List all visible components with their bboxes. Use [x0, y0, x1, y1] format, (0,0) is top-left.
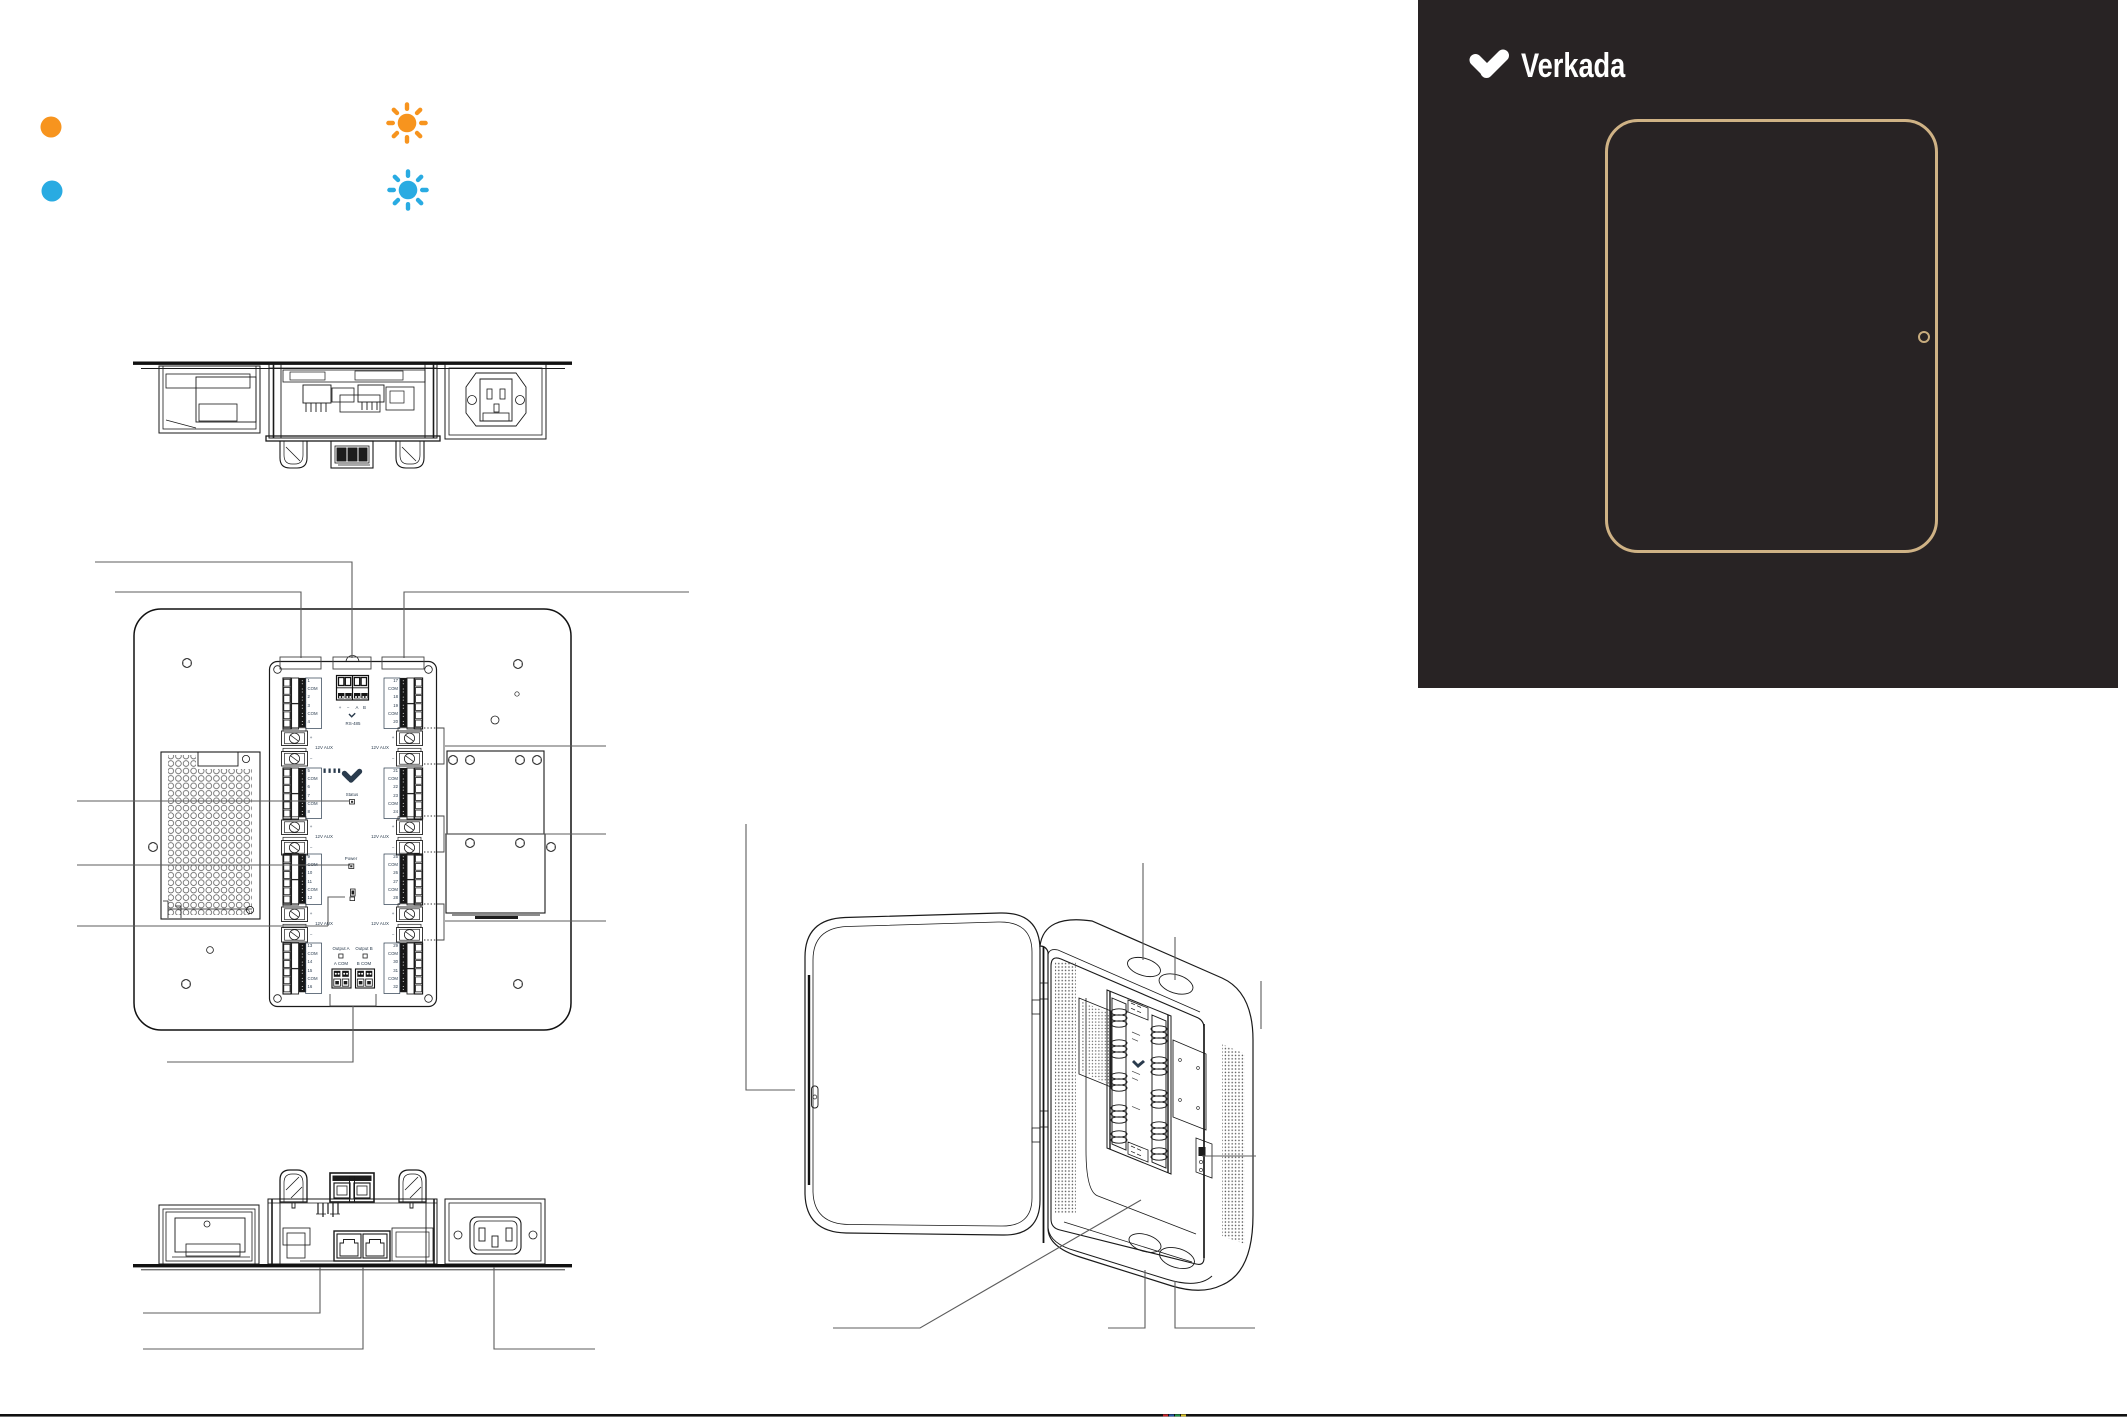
svg-text:−: −: [392, 845, 395, 850]
svg-text:−: −: [392, 932, 395, 937]
svg-text:8: 8: [308, 809, 311, 814]
svg-text:+: +: [310, 824, 313, 829]
svg-text:12V AUX: 12V AUX: [315, 921, 333, 926]
svg-text:15: 15: [308, 968, 313, 973]
svg-text:18: 18: [393, 694, 398, 699]
svg-text:COM: COM: [388, 951, 398, 956]
svg-text:12V AUX: 12V AUX: [315, 745, 333, 750]
svg-text:4: 4: [308, 719, 311, 724]
svg-text:COM: COM: [308, 801, 318, 806]
svg-text:5: 5: [308, 768, 311, 773]
svg-text:B COM: B COM: [357, 961, 372, 966]
svg-text:COM: COM: [388, 862, 398, 867]
svg-text:COM: COM: [388, 776, 398, 781]
svg-text:21: 21: [393, 768, 398, 773]
svg-text:−: −: [310, 932, 313, 937]
svg-text:19: 19: [393, 703, 398, 708]
svg-text:2: 2: [308, 694, 311, 699]
svg-text:12V AUX: 12V AUX: [315, 834, 333, 839]
svg-text:25: 25: [393, 854, 398, 859]
svg-text:A: A: [356, 705, 359, 710]
svg-text:Verkada: Verkada: [1521, 46, 1626, 85]
svg-text:−: −: [392, 756, 395, 761]
svg-text:−: −: [347, 705, 350, 710]
svg-text:+: +: [392, 735, 395, 740]
svg-text:13: 13: [308, 943, 313, 948]
svg-text:12V AUX: 12V AUX: [371, 834, 389, 839]
svg-text:11: 11: [308, 879, 313, 884]
svg-text:24: 24: [393, 809, 398, 814]
svg-text:+: +: [310, 911, 313, 916]
svg-text:COM: COM: [388, 976, 398, 981]
svg-text:6: 6: [308, 784, 311, 789]
svg-text:−: −: [310, 756, 313, 761]
svg-text:−: −: [310, 845, 313, 850]
svg-text:9: 9: [308, 854, 311, 859]
svg-text:COM: COM: [388, 686, 398, 691]
svg-text:COM: COM: [388, 887, 398, 892]
svg-text:31: 31: [393, 968, 398, 973]
svg-text:28: 28: [393, 895, 398, 900]
svg-text:32: 32: [393, 984, 398, 989]
svg-text:7: 7: [308, 793, 311, 798]
svg-text:A COM: A COM: [334, 961, 348, 966]
svg-text:26: 26: [393, 870, 398, 875]
svg-text:1: 1: [308, 678, 311, 683]
svg-text:16: 16: [308, 984, 313, 989]
svg-text:Output A: Output A: [332, 946, 349, 951]
svg-text:Output B: Output B: [355, 946, 372, 951]
svg-text:COM: COM: [388, 711, 398, 716]
svg-text:COM: COM: [308, 887, 318, 892]
svg-text:12: 12: [308, 895, 313, 900]
svg-text:10: 10: [308, 870, 313, 875]
svg-text:B: B: [363, 705, 366, 710]
svg-text:27: 27: [393, 879, 398, 884]
svg-text:RS-485: RS-485: [346, 721, 361, 726]
svg-text:COM: COM: [308, 951, 318, 956]
svg-text:14: 14: [308, 959, 313, 964]
svg-text:3: 3: [308, 703, 311, 708]
svg-text:23: 23: [393, 793, 398, 798]
svg-text:+: +: [392, 911, 395, 916]
svg-text:Power: Power: [345, 856, 358, 861]
svg-text:COM: COM: [308, 976, 318, 981]
svg-text:12V AUX: 12V AUX: [371, 921, 389, 926]
svg-text:COM: COM: [308, 711, 318, 716]
svg-text:COM: COM: [388, 801, 398, 806]
svg-text:17: 17: [393, 678, 398, 683]
svg-text:22: 22: [393, 784, 398, 789]
svg-text:COM: COM: [308, 862, 318, 867]
svg-text:+: +: [339, 705, 342, 710]
svg-text:+: +: [310, 735, 313, 740]
svg-text:COM: COM: [308, 686, 318, 691]
svg-text:20: 20: [393, 719, 398, 724]
svg-text:12V AUX: 12V AUX: [371, 745, 389, 750]
svg-text:29: 29: [393, 943, 398, 948]
svg-text:COM: COM: [308, 776, 318, 781]
svg-text:Status: Status: [346, 792, 359, 797]
svg-text:30: 30: [393, 959, 398, 964]
svg-text:+: +: [392, 824, 395, 829]
